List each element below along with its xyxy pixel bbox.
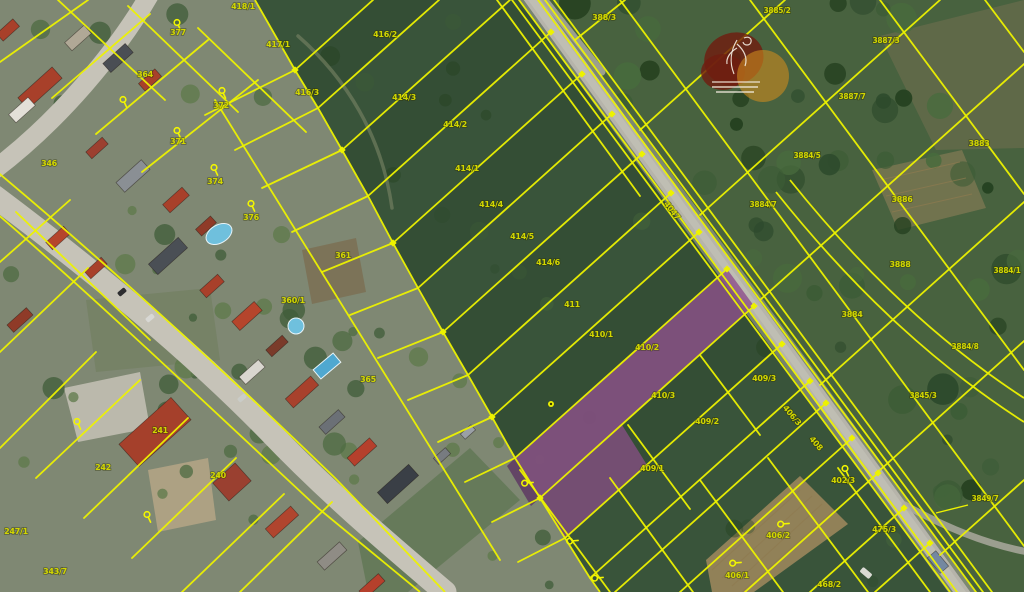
parcel-number-label: 406/1: [725, 571, 749, 580]
parcel-number-label: 3887/3: [872, 36, 899, 45]
parcel-number-label: 388/3: [592, 13, 616, 22]
cadastral-map-viewport[interactable]: 418/1417/1416/2416/3414/3414/2414/1414/4…: [0, 0, 1024, 592]
parcel-number-label: 377: [170, 28, 186, 37]
parcel-number-label: 414/1: [455, 164, 479, 173]
parcel-number-label: 409/1: [640, 464, 664, 473]
parcel-number-label: 241: [152, 426, 169, 435]
parcel-number-label: 409/3: [752, 374, 776, 383]
parcel-number-label: 343/7: [43, 567, 67, 576]
parcel-number-label: 411: [564, 300, 581, 309]
parcel-number-label: 3884: [841, 310, 863, 319]
parcel-number-label: 414/3: [392, 93, 416, 102]
parcel-number-label: 414/5: [510, 232, 534, 241]
parcel-number-label: 3884/1: [993, 266, 1020, 275]
parcel-number-label: 3884/7: [749, 200, 776, 209]
parcel-number-label: 240: [210, 471, 227, 480]
parcel-number-label: 3849/7: [971, 494, 998, 503]
parcel-number-label: 3886: [891, 195, 913, 204]
parcel-number-label: 361: [335, 251, 352, 260]
parcel-number-label: 371: [170, 137, 187, 146]
parcel-number-label: 376: [243, 213, 260, 222]
parcel-number-label: 365: [360, 375, 377, 384]
parcel-number-label: 3885/2: [763, 6, 790, 15]
parcel-number-label: 3845/3: [909, 391, 936, 400]
parcel-number-label: 418/1: [231, 2, 255, 11]
parcel-number-label: 410/2: [635, 343, 659, 352]
parcel-number-label: 364: [137, 70, 154, 79]
parcel-number-label: 414/6: [536, 258, 560, 267]
parcel-number-label: 402/3: [831, 476, 855, 485]
parcel-number-label: 360/1: [281, 296, 305, 305]
parcel-number-label: 372: [213, 101, 229, 110]
parcel-number-label: 247/1: [4, 527, 28, 536]
parcel-number-label: 416/2: [373, 30, 397, 39]
parcel-number-label: 410/3: [651, 391, 675, 400]
parcel-number-label: 242: [95, 463, 111, 472]
parcel-number-label: 346: [41, 159, 58, 168]
parcel-number-label: 3883: [968, 139, 989, 148]
parcel-number-label: 3884/5: [793, 151, 820, 160]
parcel-number-label: 406/2: [766, 531, 790, 540]
parcel-number-label: 414/4: [479, 200, 503, 209]
swimming-pool: [288, 318, 304, 334]
parcel-number-label: 3884/8: [951, 342, 978, 351]
parcel-number-label: 468/2: [817, 580, 841, 589]
parcel-number-label: 475/3: [872, 525, 896, 534]
parcel-number-label: 417/1: [266, 40, 290, 49]
parcel-number-label: 3888: [889, 260, 911, 269]
parcel-number-label: 374: [207, 177, 224, 186]
cadastral-map-canvas[interactable]: 418/1417/1416/2416/3414/3414/2414/1414/4…: [0, 0, 1024, 592]
parcel-number-label: 416/3: [295, 88, 319, 97]
parcel-number-label: 409/2: [695, 417, 719, 426]
parcel-number-label: 3887/7: [838, 92, 865, 101]
parcel-number-label: 414/2: [443, 120, 467, 129]
parcel-number-label: 410/1: [589, 330, 613, 339]
